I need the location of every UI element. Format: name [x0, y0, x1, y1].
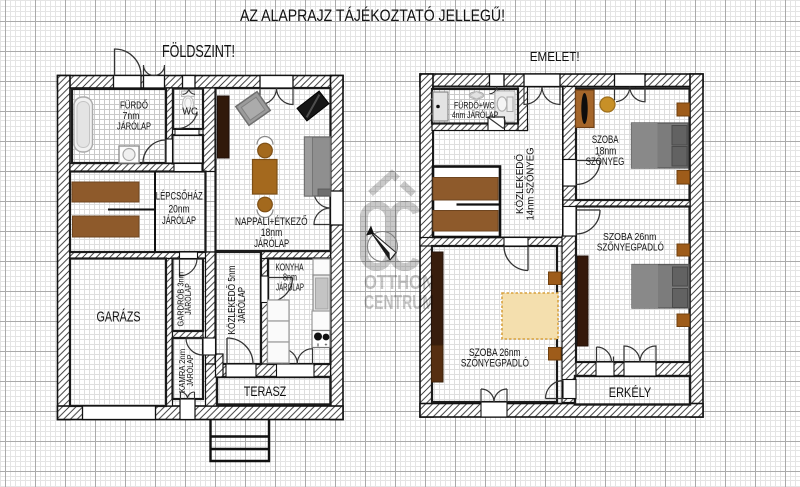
svg-text:GARÁZS: GARÁZS — [97, 309, 141, 326]
svg-text:+: + — [325, 343, 328, 349]
svg-text:TERASZ: TERASZ — [244, 383, 287, 399]
svg-text:NAPPALI+ÉTKEZŐ: NAPPALI+ÉTKEZŐ — [235, 214, 308, 228]
svg-text:JÁRÓLAP: JÁRÓLAP — [185, 354, 195, 386]
svg-text:SZŐNYEG: SZŐNYEG — [586, 154, 625, 168]
svg-text:AZ ALAPRAJZ TÁJÉKOZTATÓ JELLEG: AZ ALAPRAJZ TÁJÉKOZTATÓ JELLEGŰ! — [240, 6, 505, 25]
svg-text:JÁRÓLAP: JÁRÓLAP — [254, 237, 289, 250]
svg-text:LÉPCSŐHÁZ: LÉPCSŐHÁZ — [156, 189, 203, 203]
svg-text:FÖLDSZINT!: FÖLDSZINT! — [162, 41, 235, 61]
svg-text:JÁRÓLAP: JÁRÓLAP — [276, 281, 304, 294]
svg-text:SZŐNYEGPADLÓ: SZŐNYEGPADLÓ — [461, 356, 529, 370]
svg-text:WC: WC — [182, 106, 198, 118]
svg-text:JÁRÓLAP: JÁRÓLAP — [235, 287, 248, 323]
svg-text:KÖZLEKEDŐ 5nm: KÖZLEKEDŐ 5nm — [224, 266, 238, 335]
svg-text:14nm SZŐNYEG: 14nm SZŐNYEG — [523, 148, 537, 221]
svg-text:JÁRÓLAP: JÁRÓLAP — [162, 214, 196, 227]
svg-text:JÁRÓLAP: JÁRÓLAP — [183, 283, 193, 315]
svg-text:SZOBA: SZOBA — [592, 134, 619, 146]
svg-text:4nm JÁRÓLAP: 4nm JÁRÓLAP — [452, 110, 498, 121]
svg-text:JÁRÓLAP: JÁRÓLAP — [117, 120, 151, 133]
svg-text:EMELET!: EMELET! — [530, 50, 580, 64]
svg-text:CENTRUM: CENTRUM — [364, 291, 434, 314]
svg-text:20nm: 20nm — [169, 204, 190, 216]
svg-text:SZŐNYEGPADLÓ: SZŐNYEGPADLÓ — [597, 240, 664, 254]
svg-text:ERKÉLY: ERKÉLY — [609, 384, 652, 400]
